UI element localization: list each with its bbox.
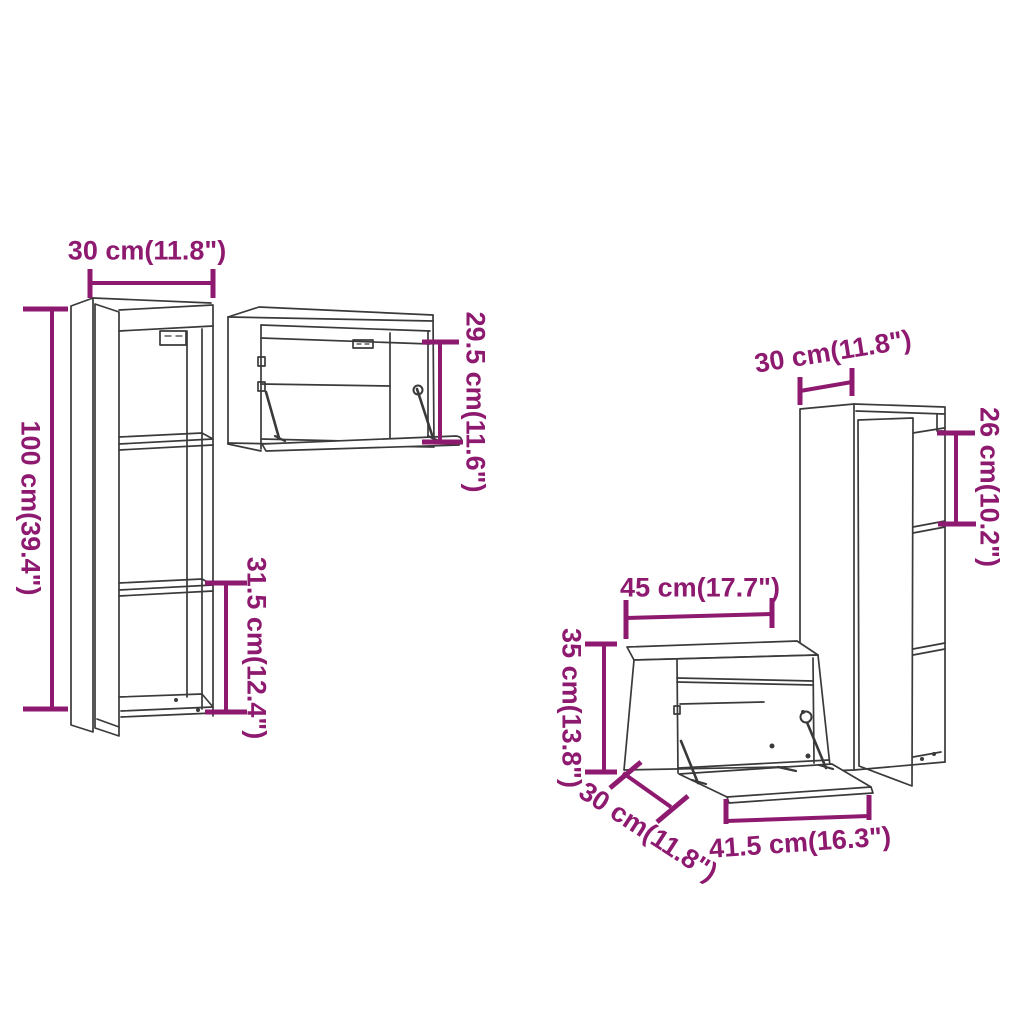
dimension-bottom-cabinet-height bbox=[585, 644, 617, 772]
dimension-bottom-cabinet-flap-width bbox=[726, 795, 869, 824]
label-bottom-cabinet-height: 35 cm(13.8") bbox=[558, 628, 585, 788]
label-bottom-cabinet-width: 45 cm(17.7") bbox=[620, 575, 780, 602]
flap-wall-cabinet-bottom-drawing bbox=[624, 641, 873, 803]
diagram-canvas bbox=[0, 0, 1024, 1024]
dimension-bottom-cabinet-width bbox=[626, 598, 772, 639]
label-right-cabinet-shelf: 26 cm(10.2") bbox=[976, 407, 1003, 567]
label-left-cabinet-height: 100 cm(39.4") bbox=[17, 421, 44, 596]
dimension-right-cabinet-width bbox=[800, 368, 852, 405]
furniture-dimension-diagram: 30 cm(11.8") 100 cm(39.4") 31.5 cm(12.4"… bbox=[0, 0, 1024, 1024]
dimension-left-cabinet-width bbox=[90, 269, 213, 298]
tall-wall-cabinet-left-drawing bbox=[71, 298, 213, 736]
dimension-right-cabinet-shelf bbox=[937, 433, 976, 524]
label-left-cabinet-width: 30 cm(11.8") bbox=[68, 238, 226, 265]
horizontal-wall-cabinet-drawing bbox=[228, 307, 461, 451]
label-left-cabinet-shelf: 31.5 cm(12.4") bbox=[243, 557, 270, 739]
label-top-cabinet-height: 29.5 cm(11.6") bbox=[462, 312, 489, 493]
